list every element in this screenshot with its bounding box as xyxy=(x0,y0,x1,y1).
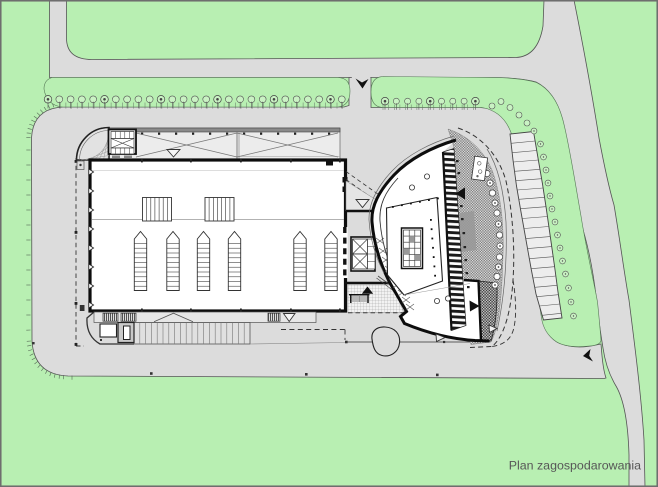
svg-text:Plan zagospodarowania: Plan zagospodarowania xyxy=(509,459,641,473)
